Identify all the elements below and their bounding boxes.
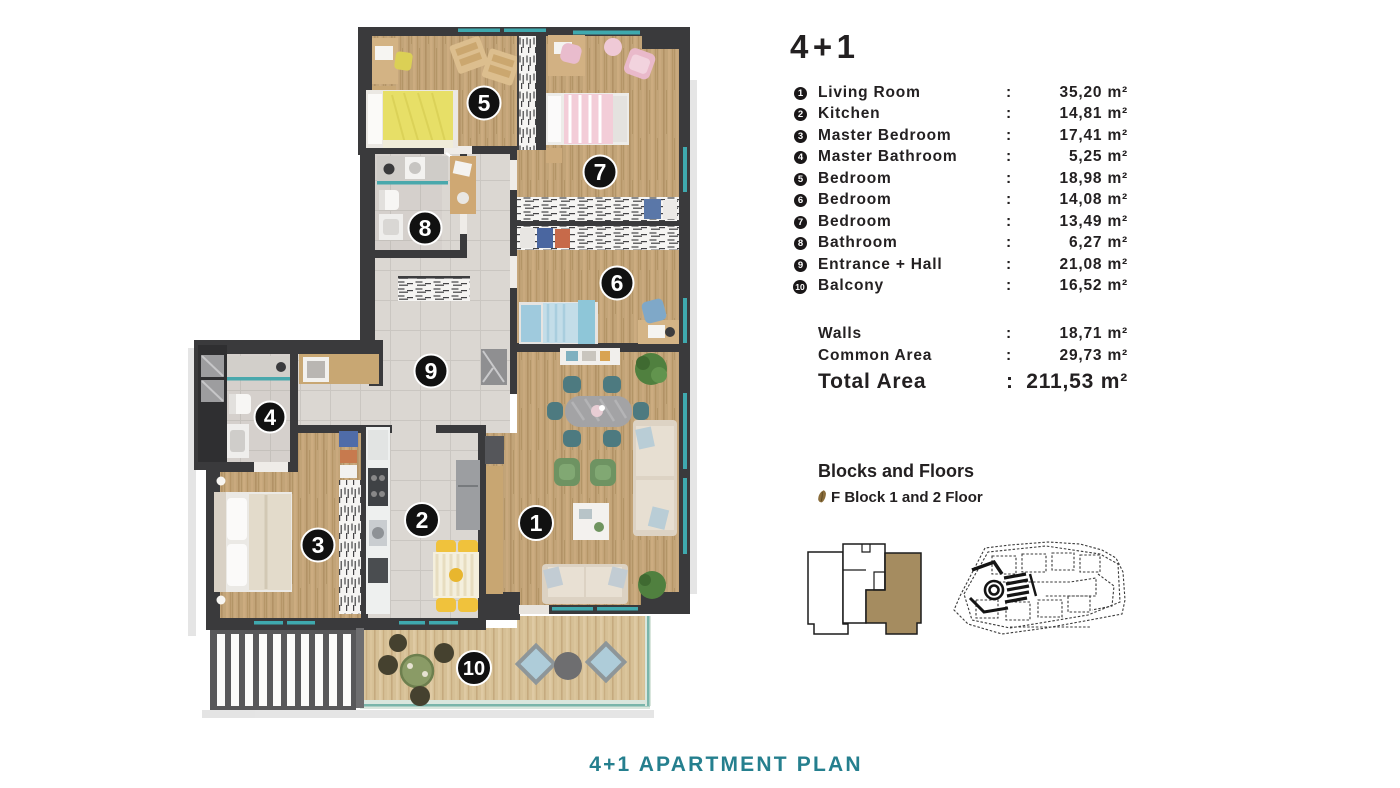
svg-text:9: 9: [425, 358, 438, 384]
svg-text:10: 10: [463, 658, 485, 680]
svg-text:5: 5: [478, 90, 491, 116]
svg-text:8: 8: [419, 215, 432, 241]
svg-text:1: 1: [530, 510, 543, 536]
svg-text:6: 6: [611, 270, 624, 296]
svg-text:2: 2: [416, 507, 429, 533]
svg-text:3: 3: [312, 532, 325, 558]
svg-text:4: 4: [264, 405, 277, 430]
svg-text:7: 7: [594, 159, 607, 185]
